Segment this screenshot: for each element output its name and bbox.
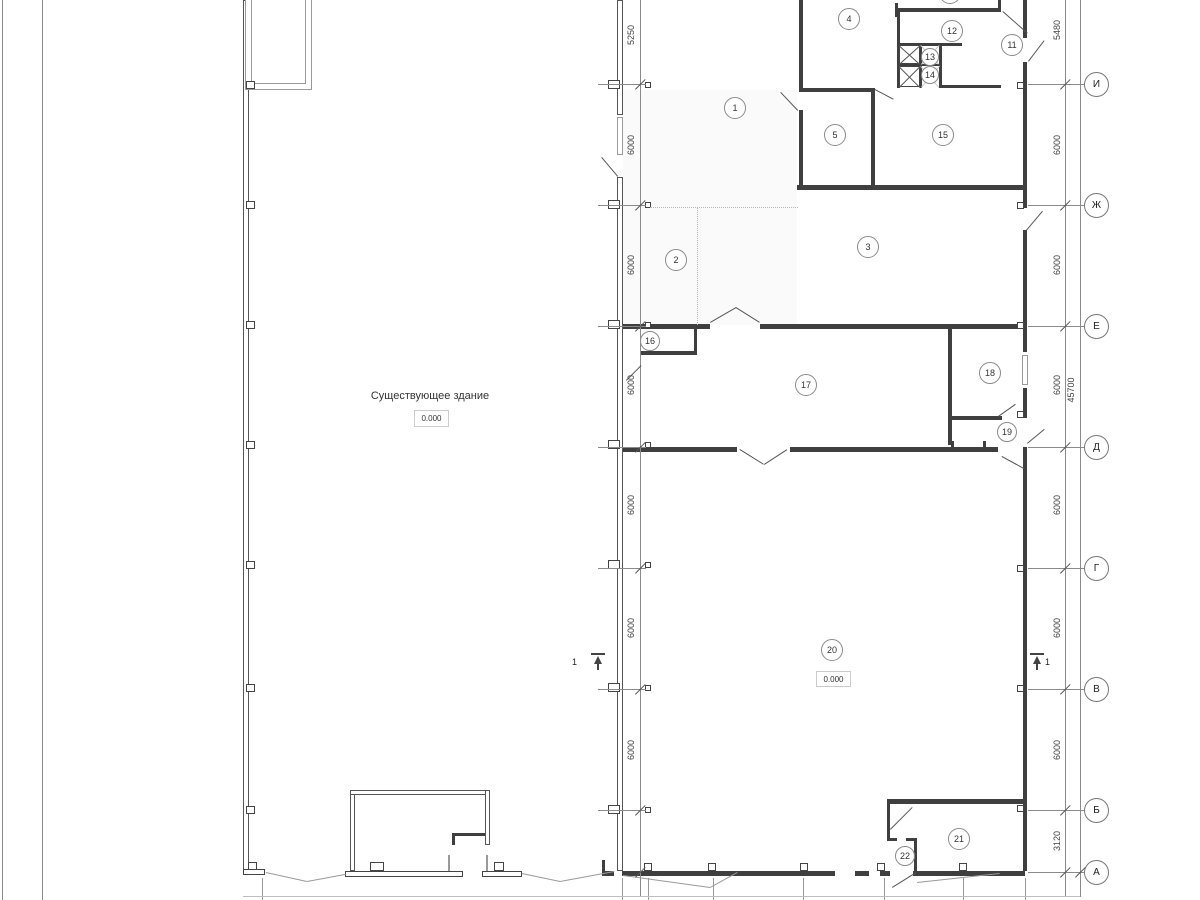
axis-bubble-И: И — [1084, 72, 1109, 97]
wall-light — [1022, 355, 1028, 385]
boundary-dotted-line — [650, 207, 798, 208]
dimension-label: 6000 — [1052, 135, 1062, 155]
wall-segment — [799, 110, 803, 186]
new-level-mark: 0.000 — [816, 671, 851, 687]
axis-line-right — [1028, 205, 1085, 206]
axis-line-right — [1028, 326, 1085, 327]
door-swing-line — [1028, 40, 1045, 62]
room-bubble — [939, 0, 961, 4]
axis-line-right — [1028, 810, 1085, 811]
section-mark-bar — [591, 653, 605, 655]
wall-segment — [452, 833, 455, 845]
axis-line-right — [1028, 84, 1085, 85]
column-marker — [608, 683, 620, 692]
door-swing-line — [522, 873, 560, 882]
existing-building-label: Существующее здание — [355, 390, 505, 402]
column-marker — [877, 863, 885, 871]
wall-double — [350, 790, 490, 795]
axis-line-right — [1028, 447, 1085, 448]
axis-bubble-А: А — [1084, 860, 1109, 885]
column-marker — [645, 322, 651, 328]
tick-line — [448, 855, 450, 871]
room-bubble: 18 — [979, 362, 1001, 384]
dimension-label: 6000 — [626, 375, 636, 395]
column-marker — [1017, 202, 1024, 209]
room-bubble: 4 — [838, 8, 860, 30]
section-mark-stem — [1036, 662, 1038, 670]
existing-level-mark: 0.000 — [414, 410, 449, 427]
wall-segment — [799, 0, 803, 88]
dimension-label: 6000 — [626, 495, 636, 515]
door-swing-line — [1002, 456, 1024, 469]
column-marker — [608, 320, 620, 329]
tick-line — [486, 855, 488, 871]
wall-segment — [640, 351, 697, 355]
door-swing-line — [739, 449, 764, 465]
door-swing-line — [892, 872, 917, 888]
wall-segment — [797, 185, 1025, 190]
column-marker — [1017, 685, 1024, 692]
dimension-label: 6000 — [1052, 618, 1062, 638]
room-bubble: 20 — [821, 639, 843, 661]
room-bubble: 13 — [921, 48, 939, 66]
axis-line-right — [1028, 689, 1085, 690]
dimension-label: 6000 — [626, 618, 636, 638]
column-marker — [246, 201, 255, 209]
column-marker — [482, 871, 522, 877]
dimension-label: 6000 — [626, 255, 636, 275]
grid-line — [1080, 0, 1081, 897]
column-marker — [708, 863, 716, 871]
column-marker — [246, 81, 255, 89]
dimension-label: 5250 — [626, 25, 636, 45]
room-bubble: 15 — [932, 124, 954, 146]
axis-bubble-Г: Г — [1084, 556, 1109, 581]
wall-segment — [855, 871, 869, 876]
dimension-label: 6000 — [626, 135, 636, 155]
column-marker — [246, 806, 255, 814]
wall-segment — [913, 871, 1025, 876]
door-swing-line — [560, 871, 614, 882]
dimension-label: 6000 — [626, 740, 636, 760]
wall-segment — [887, 799, 1025, 804]
dimension-label: 3120 — [1052, 831, 1062, 851]
wall-segment — [880, 871, 890, 876]
dimension-label: 6000 — [1052, 740, 1062, 760]
room-bubble: 12 — [941, 20, 963, 42]
wall-segment — [897, 8, 1000, 12]
section-mark-stem — [597, 662, 599, 670]
room-bubble: 21 — [948, 828, 970, 850]
wall-double — [350, 790, 355, 871]
wall-double — [617, 177, 623, 871]
section-mark-number: 1 — [1045, 657, 1050, 667]
column-marker — [243, 869, 265, 875]
dimension-baseline — [243, 896, 1080, 897]
room-bubble: 17 — [795, 374, 817, 396]
dimension-label: 6000 — [1052, 495, 1062, 515]
wall-segment — [887, 838, 897, 841]
column-marker — [246, 321, 255, 329]
column-marker — [370, 862, 384, 871]
boundary-dotted-line — [697, 208, 698, 325]
door-swing-line — [307, 874, 345, 882]
room-bubble: 5 — [824, 124, 846, 146]
axis-bubble-Б: Б — [1084, 798, 1109, 823]
section-mark-number: 1 — [572, 657, 577, 667]
door-swing-line — [266, 872, 307, 882]
room-bubble: 19 — [997, 422, 1017, 442]
wall-segment — [760, 324, 1025, 329]
column-marker — [246, 684, 255, 692]
column-marker — [959, 863, 967, 871]
door-swing-line — [1026, 211, 1043, 231]
floor-plan: Существующее здание 0.000 0.000 ИЖЕДГВБА… — [0, 0, 1200, 900]
grid-line — [2, 0, 3, 900]
room-bubble: 16 — [640, 331, 660, 351]
column-marker — [1017, 322, 1024, 329]
room-bubble: 1 — [724, 97, 746, 119]
axis-bubble-Ж: Ж — [1084, 193, 1109, 218]
dimension-label: 6000 — [1052, 255, 1062, 275]
column-marker — [246, 441, 255, 449]
axis-bubble-В: В — [1084, 677, 1109, 702]
door-swing-line — [890, 807, 913, 830]
grid-line — [42, 0, 43, 900]
axis-line-right — [1028, 872, 1085, 873]
door-swing-line — [998, 404, 1016, 417]
axis-line-right — [1028, 568, 1085, 569]
column-marker — [1017, 565, 1024, 572]
wall-segment — [950, 416, 1002, 420]
room-bubble: 2 — [665, 249, 687, 271]
column-marker — [1017, 82, 1024, 89]
wall-segment — [790, 447, 998, 452]
wall-segment — [939, 85, 1001, 88]
axis-bubble-Д: Д — [1084, 435, 1109, 460]
wall-double — [485, 790, 490, 845]
column-marker — [645, 82, 651, 88]
axis-bubble-Е: Е — [1084, 314, 1109, 339]
column-marker — [800, 863, 808, 871]
wall-segment — [799, 88, 875, 92]
room-bubble: 14 — [921, 66, 939, 84]
column-marker — [494, 862, 504, 871]
room-bubble: 11 — [1001, 34, 1023, 56]
room-bubble: 3 — [857, 236, 879, 258]
wall-double — [617, 0, 623, 115]
door-swing-line — [601, 157, 618, 177]
column-marker — [645, 685, 651, 691]
grid-line — [640, 0, 641, 897]
wall-light — [617, 117, 623, 155]
wall-light — [251, 0, 306, 84]
wall-segment — [998, 0, 1001, 12]
wall-segment — [948, 328, 952, 445]
wall-segment — [887, 799, 890, 841]
wall-double — [243, 0, 249, 871]
wall-segment — [871, 88, 875, 186]
column-marker — [1017, 805, 1024, 812]
column-marker — [345, 871, 463, 877]
room-bubble: 22 — [895, 846, 915, 866]
door-swing-line — [1027, 429, 1045, 444]
dimension-label: 6000 — [1052, 375, 1062, 395]
column-marker — [1017, 411, 1024, 418]
grid-line — [1065, 0, 1066, 897]
wall-segment — [906, 838, 917, 841]
dimension-label: 5480 — [1052, 20, 1062, 40]
column-marker — [246, 561, 255, 569]
wall-segment — [1023, 230, 1027, 352]
door-swing-line — [875, 89, 894, 100]
section-mark-bar — [1030, 653, 1044, 655]
door-swing-line — [764, 449, 788, 465]
dimension-label-overall: 45700 — [1066, 377, 1076, 402]
